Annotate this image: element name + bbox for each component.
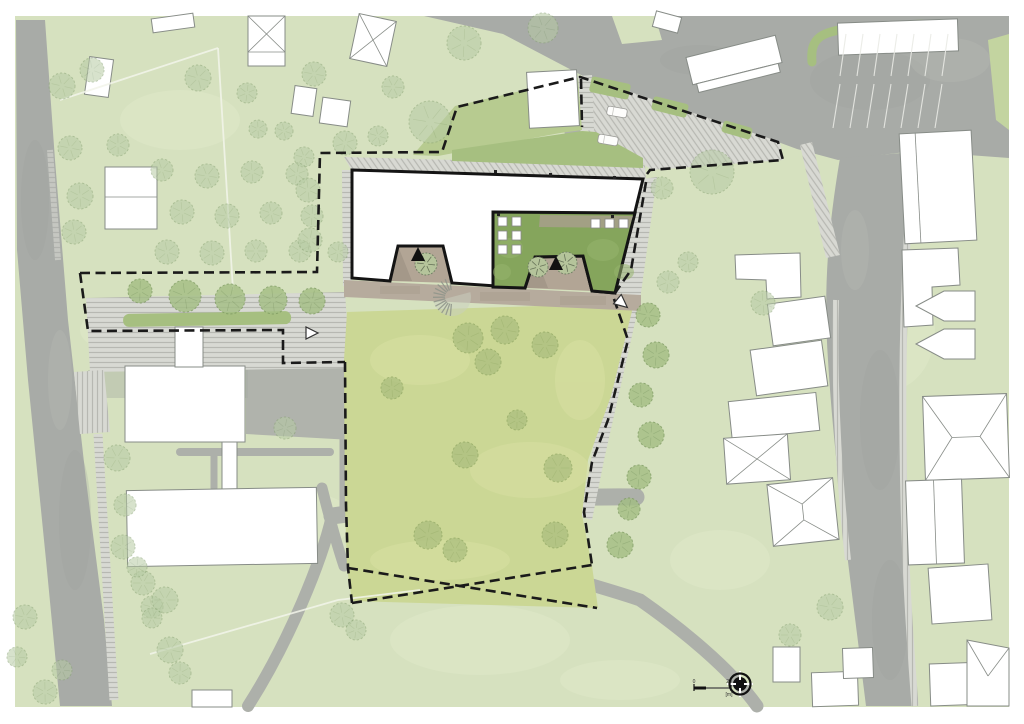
building-east-1 (899, 130, 977, 244)
plaza-paving (246, 364, 352, 440)
tree-icon (104, 445, 130, 471)
tree-icon (215, 204, 239, 228)
tree-icon (629, 383, 653, 407)
building-east-corner-gable (967, 640, 1009, 706)
tree-icon (443, 538, 467, 562)
tree-icon (52, 660, 72, 680)
tree-icon (80, 58, 104, 82)
tree-icon (690, 150, 734, 194)
tree-icon (49, 73, 75, 99)
tree-icon (528, 13, 558, 43)
building-small-se-3 (842, 647, 873, 678)
tree-icon (627, 465, 651, 489)
building-east-3 (906, 479, 965, 565)
building-x-midright (723, 434, 790, 484)
tree-icon (237, 83, 257, 103)
tree-icon (453, 323, 483, 353)
site-plan-page: 0 20 [m] (0, 0, 1024, 724)
tree-icon (678, 252, 698, 272)
tree-icon (532, 332, 558, 358)
tree-icon (127, 557, 147, 577)
tree-icon (169, 280, 201, 312)
tree-icon (245, 240, 267, 262)
tree-icon (643, 342, 669, 368)
building-midright-2 (767, 296, 830, 346)
building-slab-top-right (837, 19, 958, 55)
tree-icon (155, 240, 179, 264)
tree-icon (128, 279, 152, 303)
tree-icon (452, 442, 478, 468)
tree-icon (542, 522, 568, 548)
tree-icon (299, 288, 325, 314)
building-midright-hip (767, 478, 839, 547)
building-west-large (105, 167, 157, 229)
scale-start-label: 0 (693, 679, 696, 685)
building-x-northwest (248, 16, 285, 66)
tree-icon (151, 159, 173, 181)
tree-icon (368, 126, 388, 146)
building-small-2 (291, 86, 317, 117)
building-east-4 (928, 564, 992, 624)
building-small-3 (319, 97, 350, 127)
tree-icon (33, 680, 57, 704)
tree-icon (657, 271, 679, 293)
tree-icon (414, 521, 442, 549)
tree-icon (447, 26, 481, 60)
tree-icon (241, 161, 263, 183)
tree-icon (195, 164, 219, 188)
tree-icon (751, 291, 775, 315)
tree-icon (260, 202, 282, 224)
tree-icon (215, 284, 245, 314)
tree-icon (817, 594, 843, 620)
tree-icon (249, 120, 267, 138)
building-small-se-1 (773, 647, 800, 682)
tree-icon (200, 241, 224, 265)
tree-icon (507, 410, 527, 430)
tree-icon (142, 608, 162, 628)
building-school-south (126, 487, 317, 566)
courtyard-tree-icon (528, 257, 548, 277)
tree-icon (107, 134, 129, 156)
building-midright-3 (750, 340, 828, 396)
tree-icon (157, 637, 183, 663)
tree-icon (382, 76, 404, 98)
tree-icon (607, 532, 633, 558)
tree-icon (275, 122, 293, 140)
tree-icon (111, 535, 135, 559)
tree-icon (651, 177, 673, 199)
tree-icon (274, 417, 296, 439)
tree-icon (618, 498, 640, 520)
scale-unit-label: [m] (726, 692, 734, 698)
tree-icon (328, 242, 348, 262)
site-plan-drawing: 0 20 [m] (0, 0, 1024, 724)
tree-icon (114, 494, 136, 516)
tree-icon (544, 454, 572, 482)
building-east-hip (923, 394, 1010, 481)
tree-icon (296, 178, 320, 202)
hatch-driveway-stub (74, 370, 110, 434)
tree-icon (13, 605, 37, 629)
tree-icon (170, 200, 194, 224)
tree-icon (409, 101, 451, 143)
tree-icon (636, 303, 660, 327)
tree-icon (169, 662, 191, 684)
tree-icon (475, 349, 501, 375)
tree-icon (638, 422, 664, 448)
building-bottom-center (192, 690, 232, 707)
tree-icon (779, 624, 801, 646)
tree-icon (67, 183, 93, 209)
tree-icon (346, 620, 366, 640)
tree-icon (62, 220, 86, 244)
tree-icon (333, 131, 357, 155)
tree-icon (7, 647, 27, 667)
tree-icon (302, 62, 326, 86)
tree-icon (58, 136, 82, 160)
tree-icon (185, 65, 211, 91)
tree-icon (491, 316, 519, 344)
tree-icon (259, 286, 287, 314)
tree-icon (381, 377, 403, 399)
